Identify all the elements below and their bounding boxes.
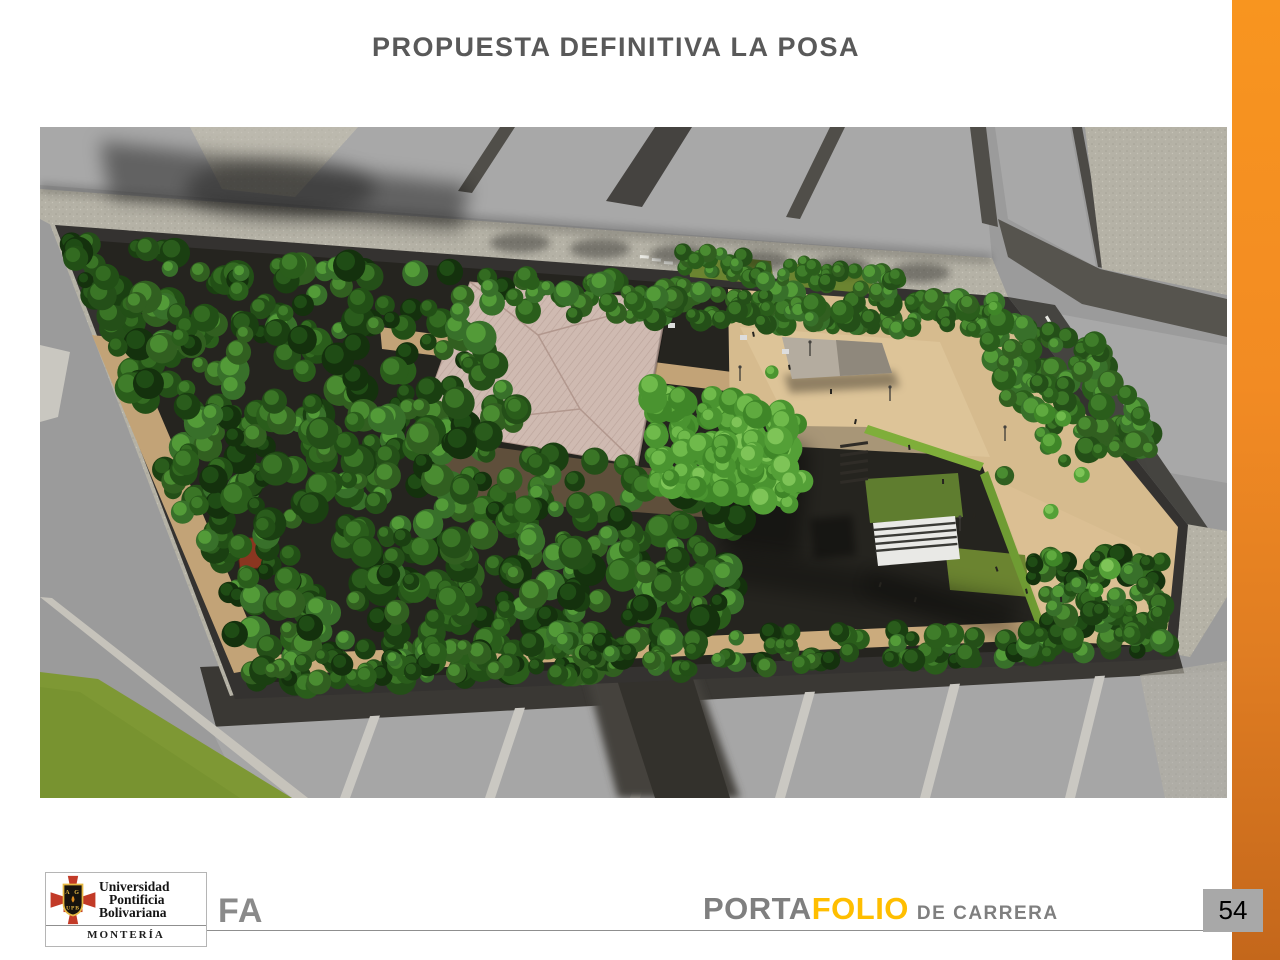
page-title: PROPUESTA DEFINITIVA LA POSA (0, 32, 1232, 63)
slide-page: PROPUESTA DEFINITIVA LA POSA A G UPB Uni… (0, 0, 1280, 960)
portfolio-suffix: DE CARRERA (917, 903, 1059, 924)
portfolio-word-gray: PORTA (703, 891, 812, 926)
portfolio-word-yellow: FOLIO (812, 891, 909, 926)
university-logo: A G UPB Universidad Pontificia Bolivaria… (45, 872, 207, 947)
portfolio-wordmark: PORTAFOLIODE CARRERA (703, 891, 1059, 927)
campus-city-label: MONTERÍA (46, 926, 206, 941)
logo-upper: A G UPB Universidad Pontificia Bolivaria… (46, 873, 206, 926)
aerial-park-rendering (40, 127, 1227, 798)
university-name: Universidad Pontificia Bolivariana (99, 880, 170, 919)
site-plan-rendering (40, 127, 1227, 798)
footer-divider (207, 930, 1203, 931)
faculty-code-label: FA (218, 892, 263, 931)
page-number-badge: 54 (1203, 889, 1263, 932)
crest-initials-top: A G (65, 889, 80, 895)
university-name-line3: Bolivariana (99, 906, 170, 919)
upb-crest-icon: A G UPB (48, 875, 98, 925)
accent-side-bar (1232, 0, 1280, 960)
crest-initials-bottom: UPB (66, 905, 80, 911)
